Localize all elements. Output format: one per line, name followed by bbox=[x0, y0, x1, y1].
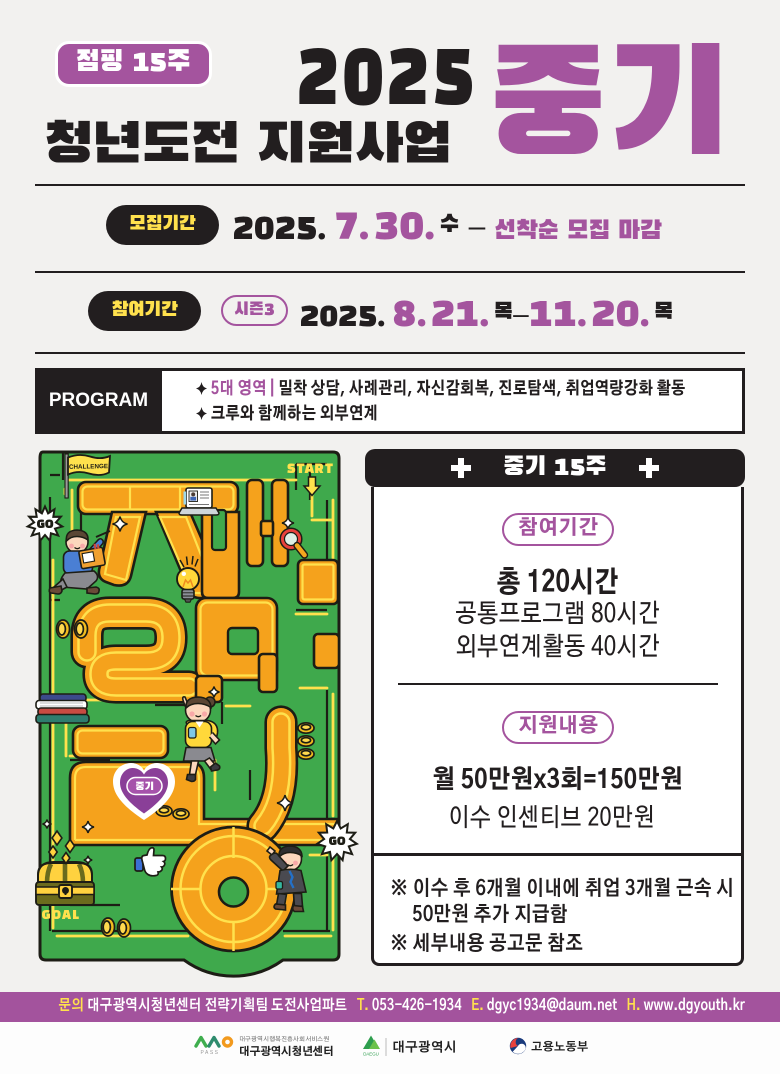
svg-text:GOAL: GOAL bbox=[41, 910, 80, 922]
svg-text:고용노동부: 고용노동부 bbox=[531, 1041, 588, 1054]
svg-text:중기: 중기 bbox=[135, 781, 153, 793]
svg-text:DAEGU: DAEGU bbox=[363, 1052, 379, 1057]
svg-text:START: START bbox=[287, 463, 333, 476]
svg-text:PASS: PASS bbox=[201, 1050, 220, 1056]
svg-text:대구광역시행복진흥사회서비스원: 대구광역시행복진흥사회서비스원 bbox=[239, 1035, 329, 1043]
svg-text:GO: GO bbox=[329, 836, 346, 848]
svg-text:대구광역시청년센터: 대구광역시청년센터 bbox=[239, 1045, 333, 1058]
svg-text:GO: GO bbox=[37, 519, 54, 531]
svg-text:CHALLENGE: CHALLENGE bbox=[69, 463, 108, 471]
svg-text:대구광역시: 대구광역시 bbox=[392, 1041, 457, 1055]
